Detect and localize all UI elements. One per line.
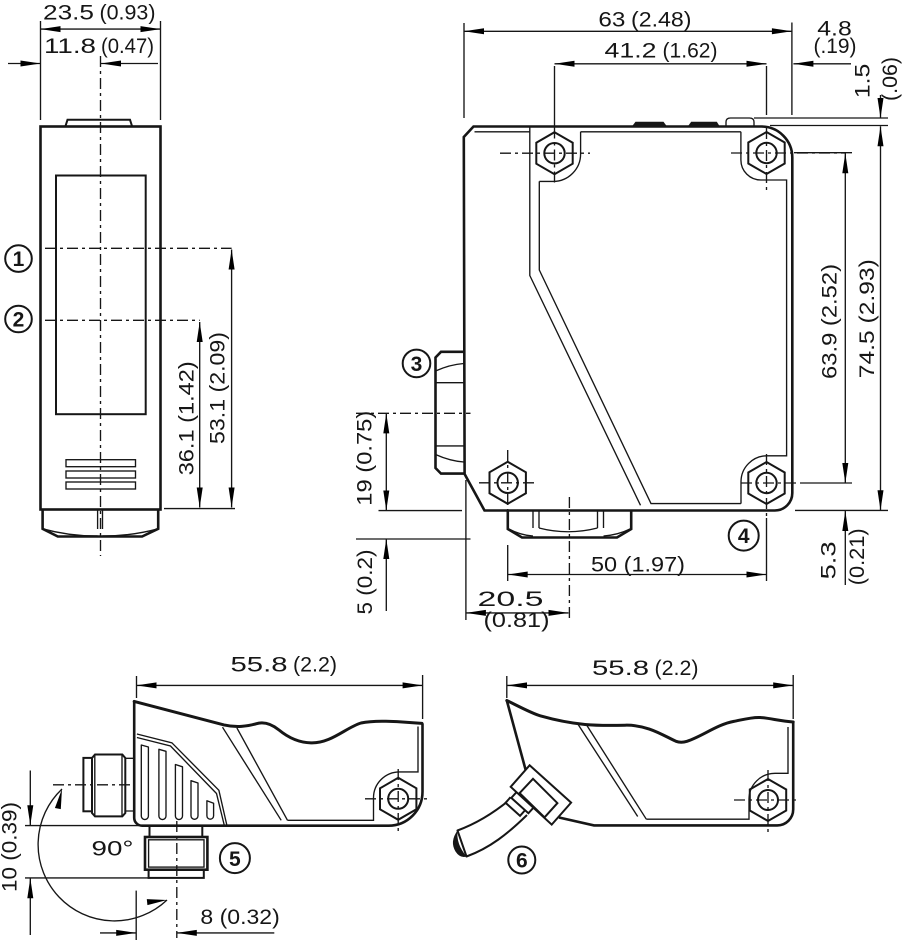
svg-text:5: 5 xyxy=(229,848,241,871)
svg-text:55.8: 55.8 xyxy=(592,656,649,680)
svg-text:55.8: 55.8 xyxy=(231,653,288,677)
svg-text:36.1 (1.42): 36.1 (1.42) xyxy=(174,361,198,475)
svg-text:23.5: 23.5 xyxy=(43,1,94,25)
svg-text:(1.62): (1.62) xyxy=(663,39,718,63)
svg-text:4: 4 xyxy=(738,525,750,548)
svg-text:(0.81): (0.81) xyxy=(484,608,550,632)
svg-text:11.8: 11.8 xyxy=(44,34,96,58)
svg-text:(0.47): (0.47) xyxy=(101,34,154,58)
svg-text:1: 1 xyxy=(13,248,25,271)
svg-text:10 (0.39): 10 (0.39) xyxy=(0,802,22,892)
svg-text:(.19): (.19) xyxy=(814,34,857,58)
svg-text:19 (0.75): 19 (0.75) xyxy=(353,411,377,506)
svg-text:41.2: 41.2 xyxy=(605,39,657,63)
svg-text:(0.93): (0.93) xyxy=(100,1,156,25)
svg-text:63: 63 xyxy=(598,7,625,31)
svg-text:1.5: 1.5 xyxy=(851,64,875,99)
svg-text:5.3: 5.3 xyxy=(817,541,841,579)
svg-text:6: 6 xyxy=(516,850,528,873)
svg-text:74.5 (2.93): 74.5 (2.93) xyxy=(855,259,879,378)
svg-text:90°: 90° xyxy=(92,837,134,861)
svg-text:5 (0.2): 5 (0.2) xyxy=(353,550,377,615)
svg-text:53.1 (2.09): 53.1 (2.09) xyxy=(206,332,230,444)
svg-text:8 (0.32): 8 (0.32) xyxy=(200,905,279,929)
svg-text:(2.2): (2.2) xyxy=(293,653,337,677)
svg-text:3: 3 xyxy=(411,353,423,376)
svg-text:63.9 (2.52): 63.9 (2.52) xyxy=(818,264,842,379)
svg-text:(0.21): (0.21) xyxy=(845,528,869,585)
svg-text:2: 2 xyxy=(13,309,25,332)
svg-text:(2.48): (2.48) xyxy=(631,7,692,31)
svg-text:(.06): (.06) xyxy=(878,57,902,101)
svg-text:50 (1.97): 50 (1.97) xyxy=(591,553,685,577)
svg-text:(2.2): (2.2) xyxy=(655,656,699,680)
